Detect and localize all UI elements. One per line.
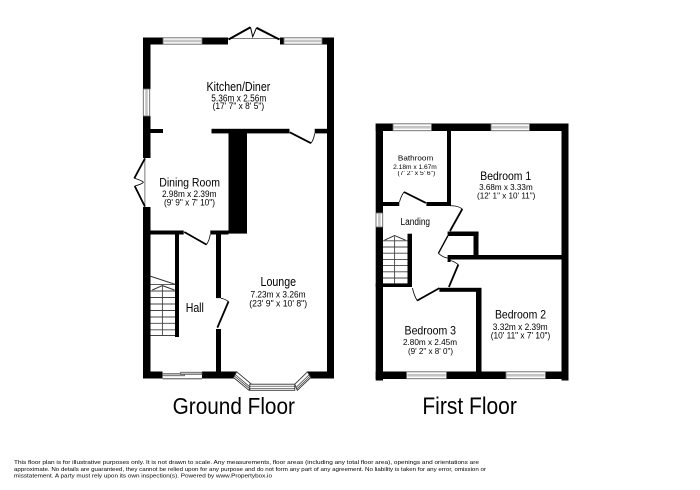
svg-text:Bedroom 2: Bedroom 2	[495, 308, 546, 322]
svg-text:2.18m x 1.67m: 2.18m x 1.67m	[393, 164, 437, 171]
svg-text:Dining Room: Dining Room	[159, 175, 220, 189]
svg-text:(9' 9" x 7' 10"): (9' 9" x 7' 10")	[164, 198, 215, 208]
svg-text:First Floor: First Floor	[422, 393, 517, 420]
svg-text:Bathroom: Bathroom	[398, 154, 433, 163]
svg-text:Bedroom 3: Bedroom 3	[405, 325, 457, 338]
svg-text:Ground Floor: Ground Floor	[173, 393, 296, 419]
svg-text:Hall: Hall	[186, 301, 204, 315]
svg-text:(10' 11" x 7' 10"): (10' 11" x 7' 10")	[491, 331, 551, 341]
svg-text:(7' 2" x 5' 6"): (7' 2" x 5' 6")	[398, 171, 436, 177]
svg-text:(9' 2" x 8' 0"): (9' 2" x 8' 0")	[408, 346, 453, 356]
svg-text:(23' 9" x 10' 8"): (23' 9" x 10' 8")	[249, 299, 307, 309]
svg-text:Landing: Landing	[401, 217, 431, 228]
svg-text:(12' 1" x 10' 11"): (12' 1" x 10' 11")	[477, 191, 536, 201]
svg-text:(17' 7" x 8' 5"): (17' 7" x 8' 5")	[213, 101, 265, 111]
svg-text:Lounge: Lounge	[261, 274, 297, 289]
svg-text:Bedroom 1: Bedroom 1	[480, 170, 531, 183]
svg-text:Kitchen/Diner: Kitchen/Diner	[207, 79, 271, 94]
svg-text:approximate. No details are gu: approximate. No details are guaranteed, …	[14, 467, 486, 473]
svg-text:This floor plan is for illustr: This floor plan is for illustrative purp…	[14, 460, 479, 466]
svg-text:misstatement. A party must rel: misstatement. A party must rely upon its…	[14, 474, 272, 480]
